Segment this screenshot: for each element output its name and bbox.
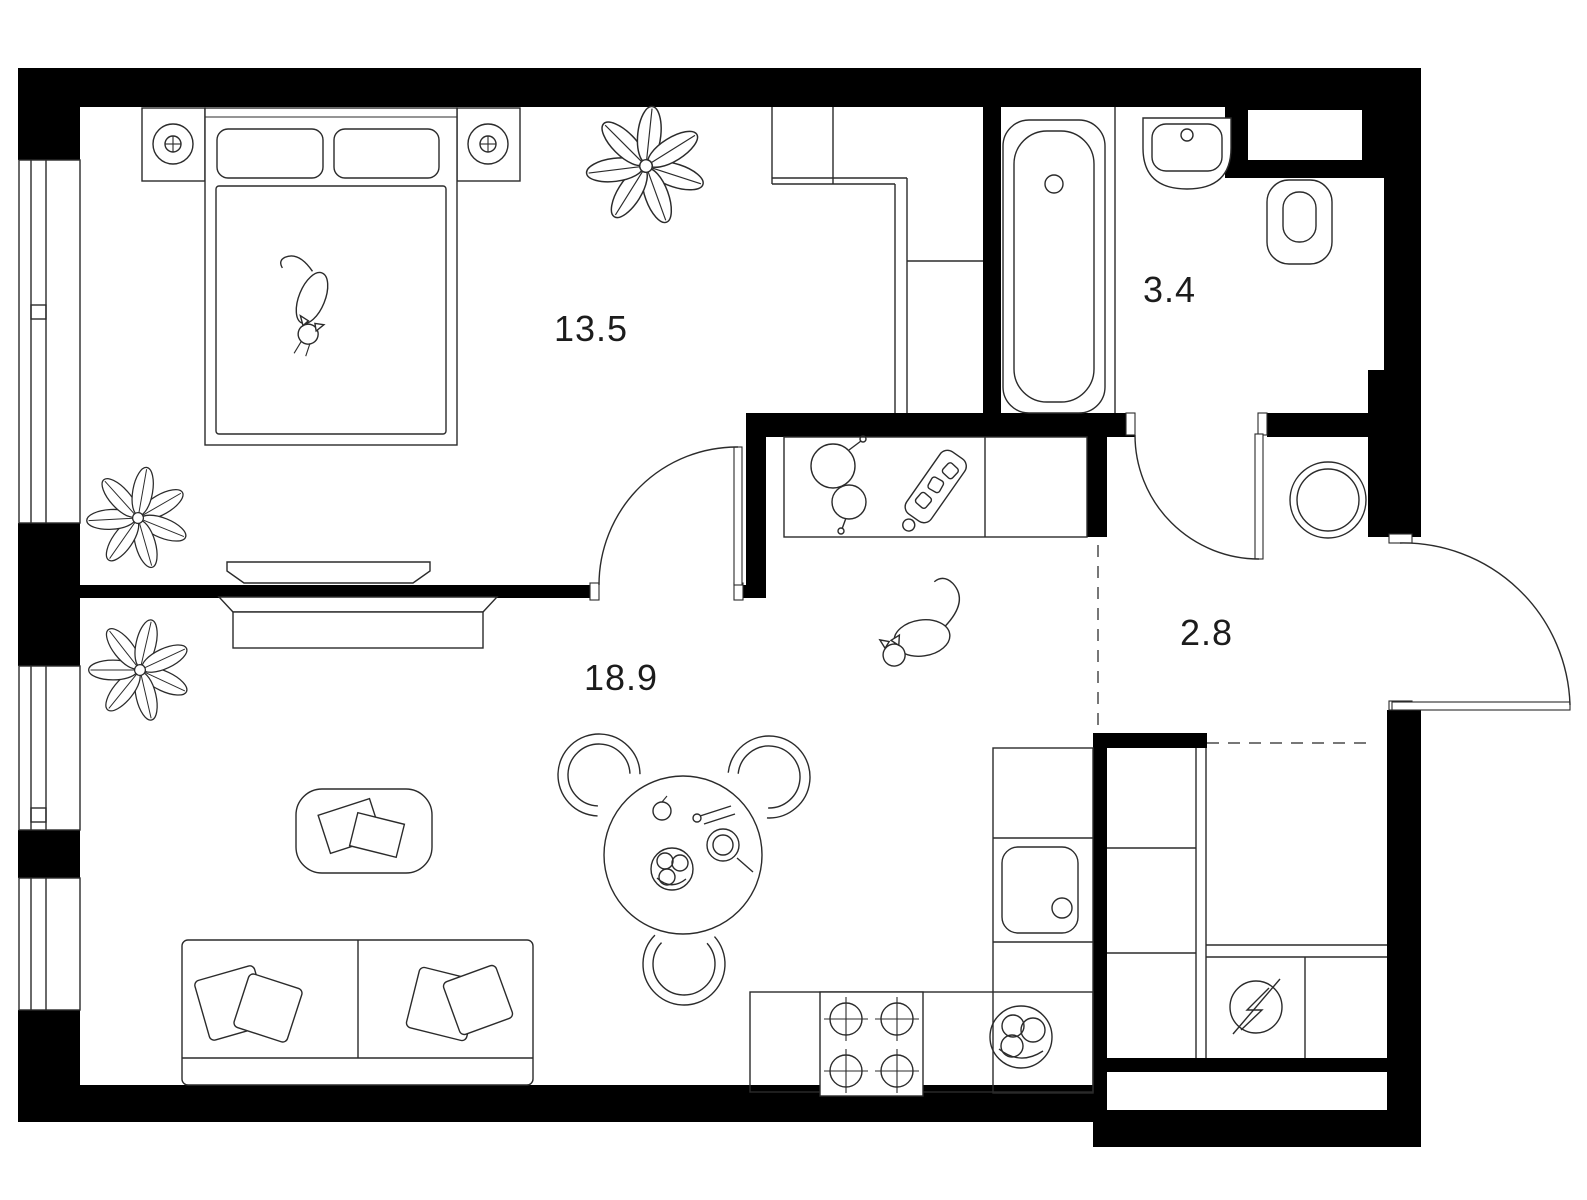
wall-niche-opening bbox=[1248, 110, 1362, 160]
wash-basin bbox=[1143, 118, 1231, 189]
coffee-table-with-magazines bbox=[296, 789, 432, 873]
bedroom-area-label: 13.5 bbox=[554, 308, 628, 349]
plant-living bbox=[72, 601, 209, 739]
bedroom-door bbox=[590, 447, 743, 600]
cooktop-four-burners bbox=[820, 992, 923, 1096]
door-jamb bbox=[1389, 534, 1412, 543]
wardrobe-shelving bbox=[1107, 748, 1387, 1058]
bedroom-door-arc bbox=[599, 447, 738, 585]
wall-kitchen-vertical bbox=[746, 413, 766, 598]
bathroom-door bbox=[1126, 413, 1267, 559]
plant-bedroom-2 bbox=[68, 447, 209, 588]
plant-bedroom-1 bbox=[571, 90, 722, 243]
bathroom-door-arc bbox=[1135, 435, 1259, 559]
frying-pan bbox=[832, 485, 866, 534]
kitchen-counter-bottom bbox=[750, 992, 1093, 1096]
kitchen-counter-top bbox=[784, 436, 1087, 539]
wall-hallway-stub bbox=[1087, 437, 1107, 537]
room-labels: 13.5 18.9 3.4 2.8 bbox=[554, 269, 1233, 698]
built-in-closet bbox=[772, 107, 983, 413]
wall-right-of-bath-door bbox=[1267, 413, 1370, 437]
entrance-door-arc bbox=[1400, 543, 1570, 705]
window-bedroom bbox=[19, 160, 80, 523]
bathroom-door-leaf bbox=[1255, 434, 1263, 559]
wall-bottom-right bbox=[1093, 1110, 1421, 1147]
door-jamb bbox=[1126, 413, 1135, 435]
fruit-bowl-on-counter bbox=[990, 1006, 1052, 1068]
nightstand-lamp-right bbox=[457, 108, 520, 181]
window-living-2 bbox=[19, 878, 80, 1010]
entrance-door-leaf bbox=[1392, 702, 1570, 710]
sofa-with-pillows bbox=[182, 940, 533, 1085]
doors bbox=[590, 413, 1570, 710]
wall-kitchen-bathroom bbox=[766, 413, 1135, 437]
wall-bedroom-bathroom bbox=[983, 107, 1001, 413]
saucepan bbox=[811, 436, 866, 488]
pillow bbox=[334, 129, 439, 178]
wardrobe-wall-bottom bbox=[1093, 1058, 1387, 1072]
pillow bbox=[217, 129, 323, 178]
kitchen-counter-right bbox=[993, 748, 1093, 1093]
wall-left-pier-1 bbox=[18, 523, 80, 666]
tv-console bbox=[219, 597, 497, 648]
hallway bbox=[1098, 462, 1372, 743]
door-jamb bbox=[590, 583, 599, 600]
wall-right-pilaster bbox=[1368, 370, 1384, 537]
bedroom-door-leaf bbox=[734, 447, 742, 585]
washing-machine bbox=[1290, 462, 1366, 538]
nightstand-lamp-left bbox=[142, 108, 205, 181]
wall-top bbox=[18, 68, 1420, 107]
entrance-door bbox=[1389, 534, 1570, 710]
wall-bottom bbox=[20, 1085, 1093, 1122]
window-transom bbox=[31, 305, 46, 319]
tv-on-wall bbox=[227, 562, 430, 583]
door-jamb bbox=[1258, 413, 1267, 435]
wall-right-lower bbox=[1387, 710, 1421, 1147]
floor-plan-canvas: 13.5 18.9 3.4 2.8 bbox=[0, 0, 1587, 1200]
window-living-1 bbox=[19, 666, 80, 830]
wardrobe-wall-left bbox=[1093, 748, 1107, 1110]
kitchen-sink-square bbox=[1002, 847, 1078, 933]
bedroom bbox=[68, 90, 983, 589]
electrical-panel-symbol bbox=[1230, 979, 1282, 1034]
cutting-board bbox=[893, 447, 970, 539]
bathtub bbox=[1003, 120, 1105, 413]
cat-on-floor bbox=[873, 576, 968, 667]
wardrobe-wall-top bbox=[1093, 733, 1207, 748]
double-bed bbox=[205, 108, 457, 445]
window-transom bbox=[31, 808, 46, 822]
kitchen bbox=[750, 436, 1093, 1096]
wall-bedroom-living bbox=[80, 585, 591, 598]
wall-left-pier-2 bbox=[18, 830, 80, 878]
wall-corner-top-left bbox=[18, 107, 80, 160]
living-kitchen-area-label: 18.9 bbox=[584, 657, 658, 698]
hallway-area-label: 2.8 bbox=[1180, 612, 1233, 653]
dining-set bbox=[557, 732, 814, 1022]
toilet bbox=[1267, 180, 1332, 264]
bathroom-area-label: 3.4 bbox=[1143, 269, 1196, 310]
floor-plan-svg: 13.5 18.9 3.4 2.8 bbox=[0, 0, 1587, 1200]
